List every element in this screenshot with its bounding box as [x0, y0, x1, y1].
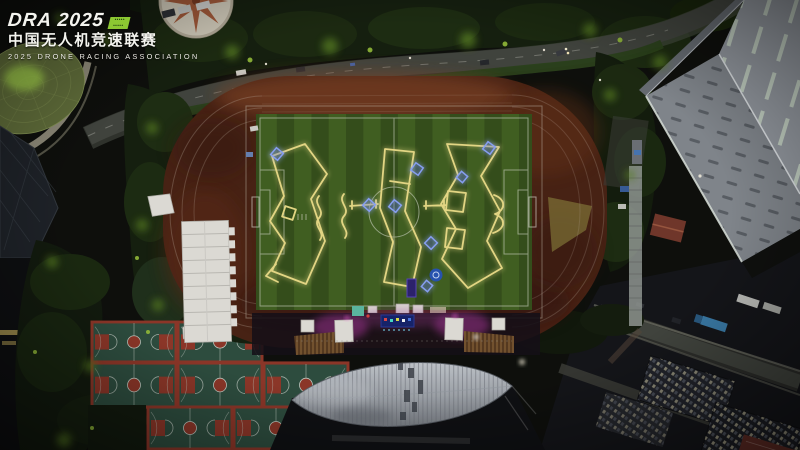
brand-text: DRA 2025 [7, 11, 105, 30]
vignette [0, 0, 800, 450]
badge-row-1: ••••• [115, 18, 125, 23]
badge-row-2: ••••• [113, 23, 123, 28]
event-logo: DRA 2025 ••••• ••••• 中国无人机竞速联赛 2025 DRON… [8, 11, 199, 61]
league-title-cn: 中国无人机竞速联赛 [8, 32, 199, 49]
station-badge: ••••• ••••• [107, 17, 130, 29]
aerial-photo: DRA 2025 ••••• ••••• 中国无人机竞速联赛 2025 DRON… [0, 0, 800, 450]
league-subtitle-en: 2025 DRONE RACING ASSOCIATION [8, 52, 199, 61]
scene [0, 0, 800, 450]
